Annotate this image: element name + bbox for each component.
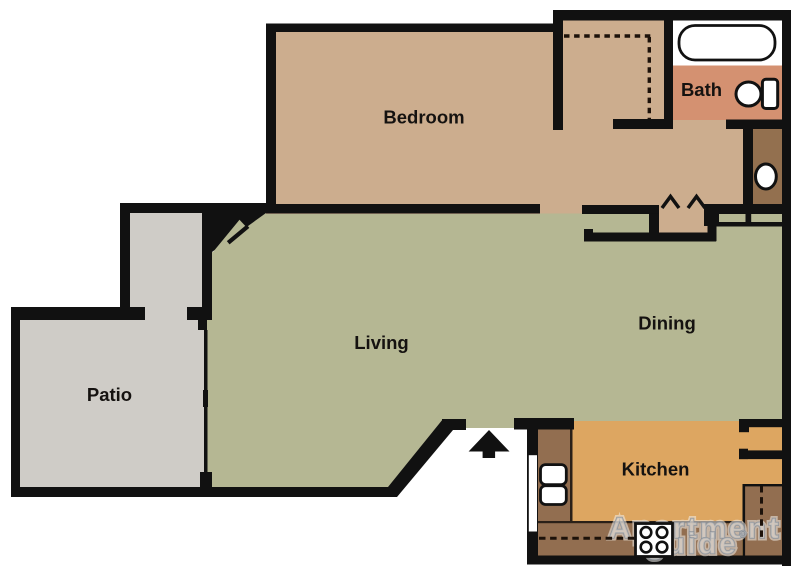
svg-text:Kitchen: Kitchen <box>622 459 690 480</box>
svg-text:Patio: Patio <box>87 384 132 405</box>
svg-text:Bedroom: Bedroom <box>383 107 464 128</box>
svg-text:Dining: Dining <box>638 313 696 334</box>
svg-text:®: ® <box>740 529 747 539</box>
svg-text:Bath: Bath <box>681 79 722 100</box>
svg-text:Living: Living <box>354 332 408 353</box>
